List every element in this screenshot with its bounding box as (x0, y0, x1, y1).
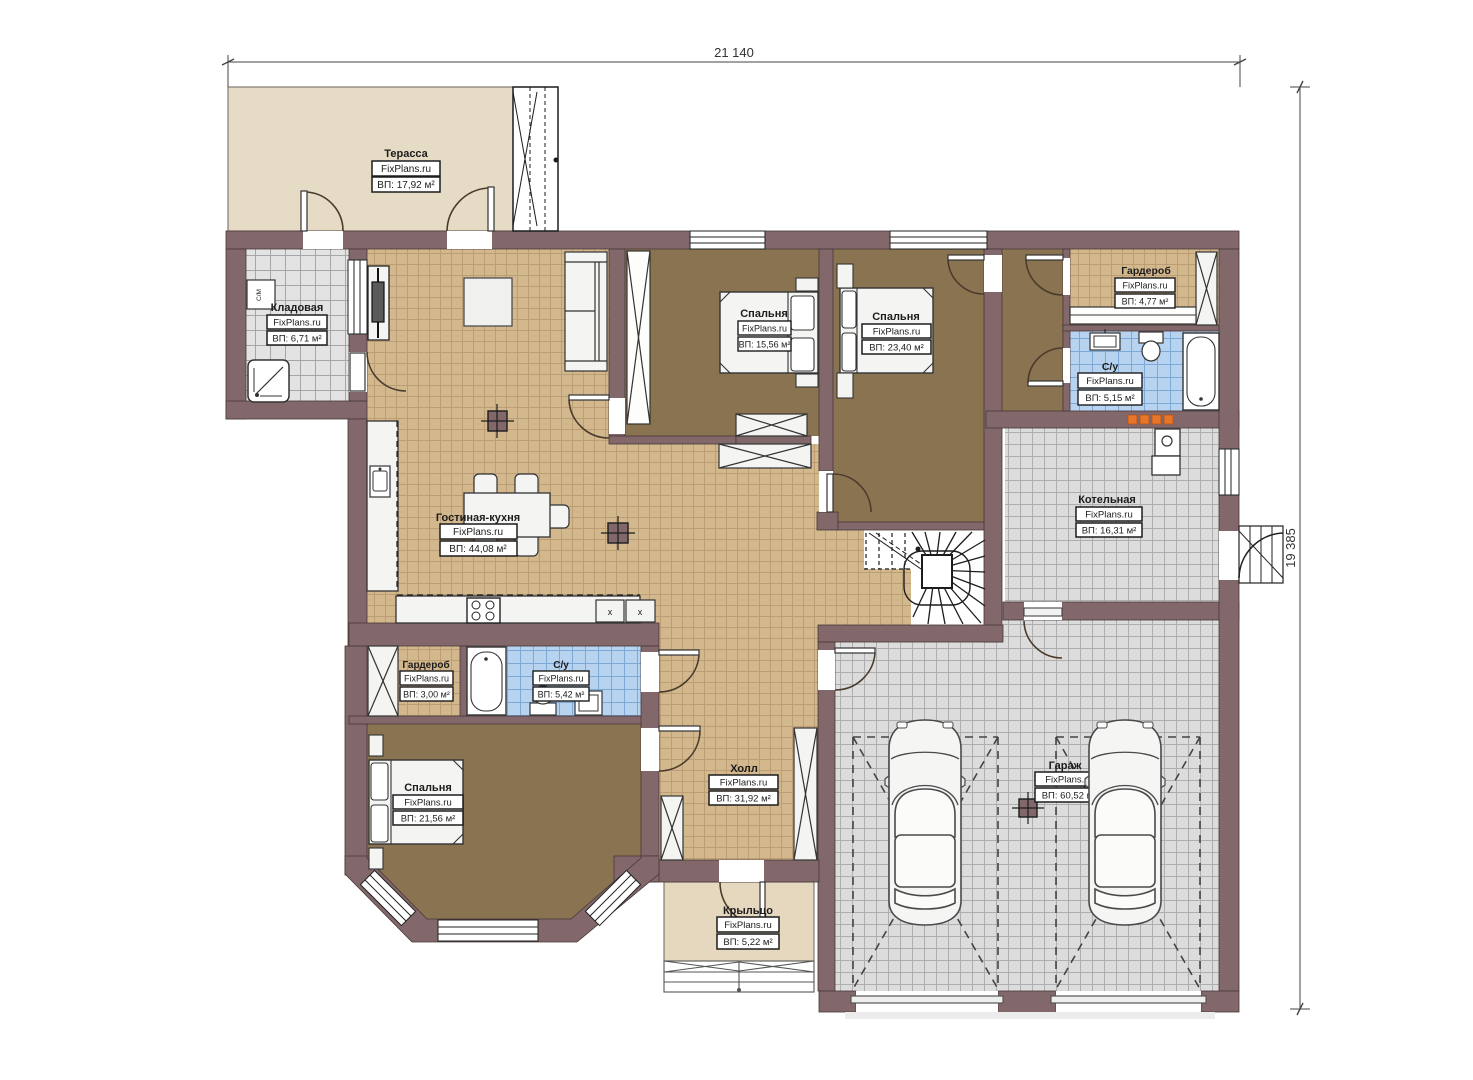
svg-text:Гардероб: Гардероб (1121, 265, 1171, 277)
svg-text:FixPlans.ru: FixPlans.ru (273, 318, 321, 329)
svg-text:x: x (638, 607, 643, 617)
svg-text:ВП: 17,92 м²: ВП: 17,92 м² (377, 180, 435, 191)
svg-text:21 140: 21 140 (714, 45, 754, 60)
svg-text:Терасса: Терасса (384, 148, 428, 160)
svg-text:ВП: 5,42 м²: ВП: 5,42 м² (538, 690, 585, 700)
svg-text:Крыльцо: Крыльцо (723, 905, 773, 917)
svg-text:Гардероб: Гардероб (402, 659, 449, 671)
svg-text:С/у: С/у (553, 660, 569, 671)
svg-text:ВП: 5,15 м²: ВП: 5,15 м² (1085, 393, 1134, 404)
svg-text:ВП: 4,77 м²: ВП: 4,77 м² (1122, 297, 1169, 307)
svg-text:Спальня: Спальня (872, 311, 920, 323)
svg-text:19 385: 19 385 (1283, 528, 1298, 568)
svg-text:ВП: 23,40 м²: ВП: 23,40 м² (869, 343, 924, 354)
svg-text:FixPlans.ru: FixPlans.ru (1085, 510, 1133, 521)
svg-text:ВП: 21,56 м²: ВП: 21,56 м² (401, 814, 456, 825)
svg-text:ВП: 3,00 м²: ВП: 3,00 м² (403, 690, 450, 700)
svg-text:FixPlans.ru: FixPlans.ru (873, 327, 921, 338)
svg-text:FixPlans.ru: FixPlans.ru (724, 920, 772, 931)
svg-text:FixPlans.ru: FixPlans.ru (1086, 376, 1134, 387)
svg-text:x: x (608, 607, 613, 617)
svg-text:FixPlans.ru: FixPlans.ru (1122, 281, 1167, 291)
svg-text:С/у: С/у (1102, 361, 1119, 373)
svg-text:Гостиная-кухня: Гостиная-кухня (436, 512, 520, 524)
svg-text:FixPlans.ru: FixPlans.ru (742, 324, 787, 334)
svg-text:FixPlans.ru: FixPlans.ru (538, 674, 583, 684)
svg-text:FixPlans.ru: FixPlans.ru (404, 674, 449, 684)
svg-text:Котельная: Котельная (1078, 494, 1136, 506)
svg-text:ВП: 5,22 м²: ВП: 5,22 м² (723, 937, 772, 948)
svg-text:ВП: 44,08 м²: ВП: 44,08 м² (449, 544, 507, 555)
svg-text:ВП: 31,92 м²: ВП: 31,92 м² (716, 794, 771, 805)
svg-text:Спальня: Спальня (404, 782, 452, 794)
svg-text:FixPlans.ru: FixPlans.ru (720, 778, 768, 789)
svg-text:FixPlans.ru: FixPlans.ru (453, 527, 503, 538)
svg-text:ВП: 60,52 м²: ВП: 60,52 м² (1042, 791, 1097, 802)
svg-text:FixPlans.ru: FixPlans.ru (404, 798, 452, 809)
svg-text:Спальня: Спальня (740, 308, 788, 320)
svg-text:FixPlans.ru: FixPlans.ru (381, 164, 431, 175)
svg-text:ВП: 16,31 м²: ВП: 16,31 м² (1082, 526, 1137, 537)
svg-text:Гараж: Гараж (1049, 760, 1082, 772)
svg-text:Холл: Холл (730, 763, 758, 775)
svg-text:ВП: 6,71 м²: ВП: 6,71 м² (272, 334, 321, 345)
svg-text:С/М: С/М (256, 289, 263, 301)
svg-text:ВП: 15,56 м²: ВП: 15,56 м² (739, 340, 791, 350)
svg-text:Кладовая: Кладовая (271, 302, 324, 314)
